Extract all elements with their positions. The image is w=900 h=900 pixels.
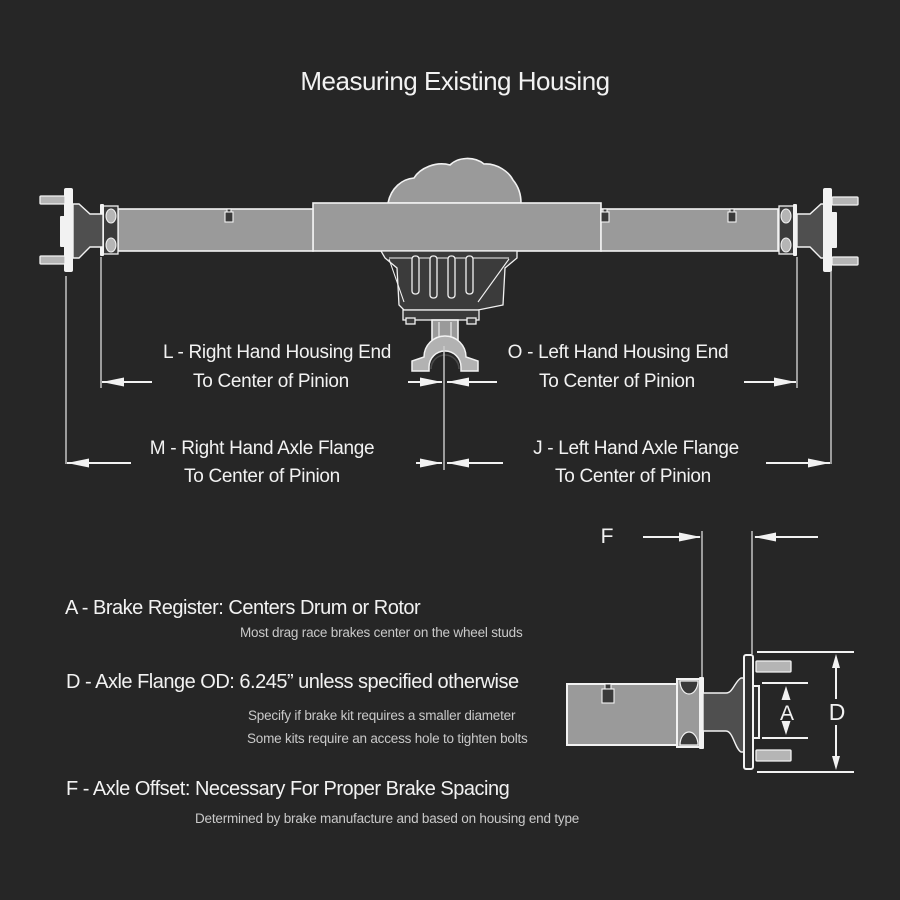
dim-label-M-line1: M - Right Hand Axle Flange [150,439,375,460]
axle-tube-left [118,209,313,251]
third-member-carrier [381,251,517,324]
dim-label-L-line1: L - Right Hand Housing End [163,343,391,364]
diagram-canvas: Measuring Existing Housing L - Right Han… [0,0,900,900]
wheel-stud [756,661,791,672]
dim-label-L-line2: To Center of Pinion [193,372,349,393]
pinion-yoke [412,336,478,371]
note-axle-flange-od-heading: D - Axle Flange OD: 6.245” unless specif… [66,671,519,693]
wheel-stud [40,256,65,264]
axle-shaft-right [797,204,824,258]
note-axle-flange-od-detail-1: Specify if brake kit requires a smaller … [248,709,515,724]
axle-tube-detail [567,684,677,745]
note-brake-register-detail: Most drag race brakes center on the whee… [240,626,523,641]
dim-label-J-line2: To Center of Pinion [555,467,711,488]
wheel-stud [832,197,858,205]
dim-label-O-line1: O - Left Hand Housing End [508,343,729,364]
axle-shaft-left [73,204,103,258]
differential-dome [388,158,521,203]
dim-label-M-line2: To Center of Pinion [184,467,340,488]
note-brake-register-heading: A - Brake Register: Centers Drum or Roto… [65,597,420,619]
axle-flange-right [823,188,832,272]
dim-letter-A: A [780,702,794,725]
note-axle-offset-heading: F - Axle Offset: Necessary For Proper Br… [66,778,509,800]
axle-shaft-detail [703,678,745,752]
page-title: Measuring Existing Housing [300,67,609,96]
f-dimension-arrows [643,533,818,542]
note-axle-flange-od-detail-2: Some kits require an access hole to tigh… [247,732,528,747]
dim-label-J-line1: J - Left Hand Axle Flange [533,439,739,460]
note-axle-offset-detail: Determined by brake manufacture and base… [195,812,579,827]
axle-flange-detail [744,655,753,769]
bearing-retainer-right [779,204,797,256]
wheel-stud [832,257,858,265]
wheel-stud [756,750,791,761]
wheel-stud [40,196,65,204]
housing-end-detail-view [567,531,854,772]
axle-tube-right [601,209,778,251]
bearing-retainer-detail [677,677,704,749]
housing-front-view [40,158,858,470]
brake-register-detail [753,686,759,738]
center-section [313,203,601,251]
dim-letter-D: D [829,700,846,725]
dim-label-O-line2: To Center of Pinion [539,372,695,393]
dim-letter-F: F [601,525,614,548]
axle-housing-diagram [0,0,900,900]
